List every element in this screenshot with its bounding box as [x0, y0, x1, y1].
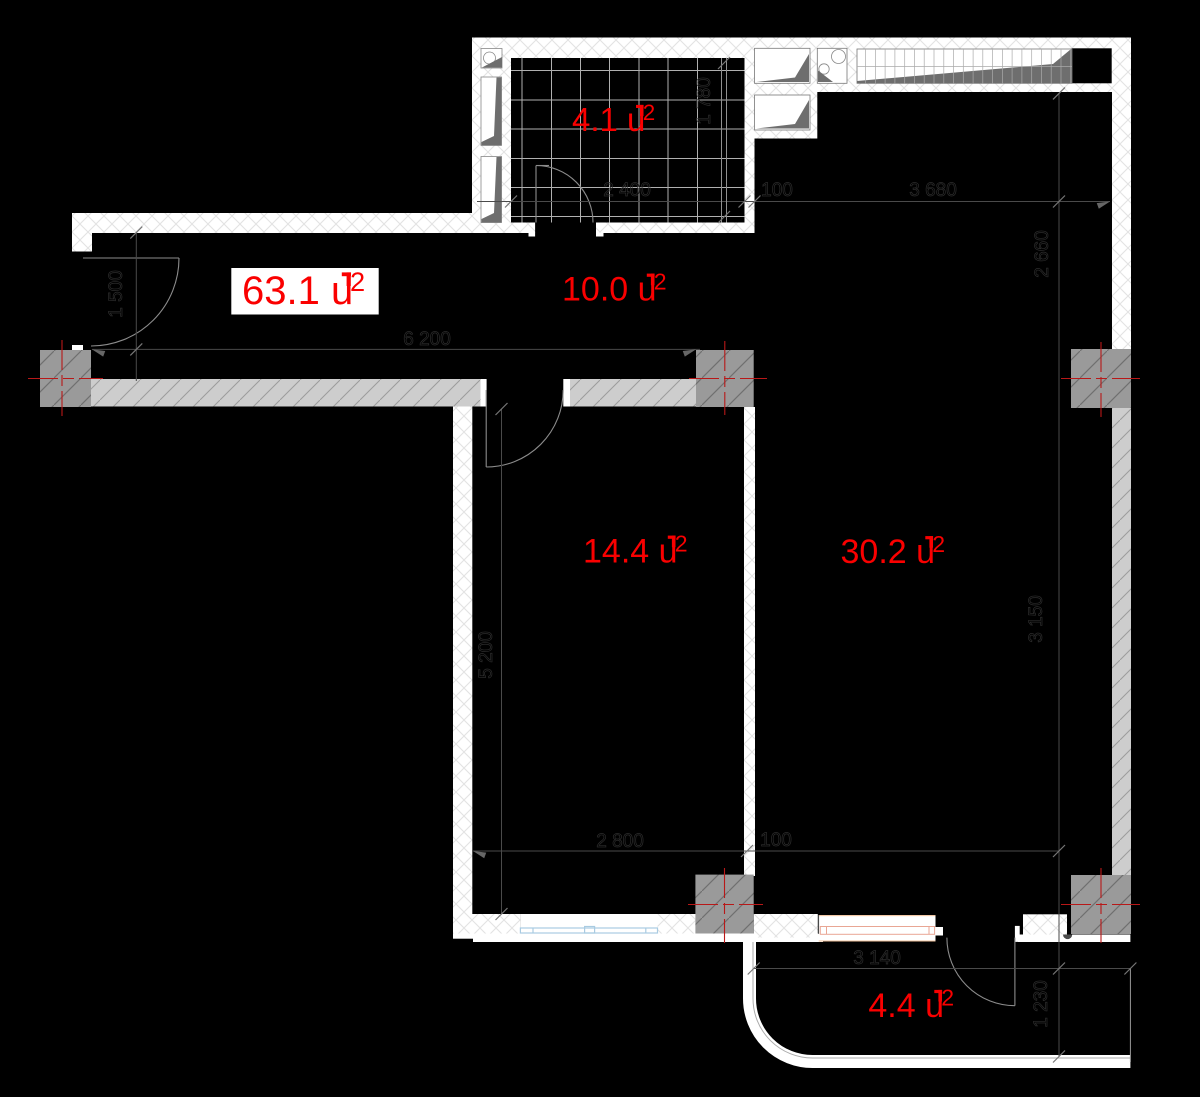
svg-text:100: 100: [760, 830, 792, 851]
svg-text:14.4: 14.4: [583, 533, 649, 571]
svg-text:2: 2: [350, 266, 365, 297]
svg-text:10.0: 10.0: [562, 271, 628, 309]
svg-text:2: 2: [654, 268, 667, 294]
svg-text:2: 2: [643, 100, 655, 125]
svg-text:6 200: 6 200: [403, 329, 451, 350]
svg-text:3 150: 3 150: [1026, 595, 1047, 643]
svg-text:1 230: 1 230: [1031, 980, 1052, 1028]
svg-text:2 400: 2 400: [603, 180, 651, 201]
svg-text:2 660: 2 660: [1032, 230, 1053, 278]
svg-text:2 800: 2 800: [596, 831, 644, 852]
svg-text:4.4: 4.4: [868, 987, 915, 1025]
svg-text:100: 100: [761, 180, 793, 201]
svg-text:63.1: 63.1: [242, 269, 320, 313]
svg-text:2: 2: [932, 531, 945, 557]
svg-text:3 680: 3 680: [909, 180, 957, 201]
svg-text:5 200: 5 200: [476, 631, 497, 679]
svg-text:30.2: 30.2: [841, 533, 907, 571]
svg-text:2: 2: [941, 985, 954, 1011]
svg-text:2: 2: [675, 530, 688, 556]
svg-text:3 140: 3 140: [853, 948, 901, 969]
svg-text:1 780: 1 780: [694, 77, 715, 125]
svg-text:4.1: 4.1: [572, 101, 618, 138]
svg-text:1 500: 1 500: [106, 270, 127, 318]
